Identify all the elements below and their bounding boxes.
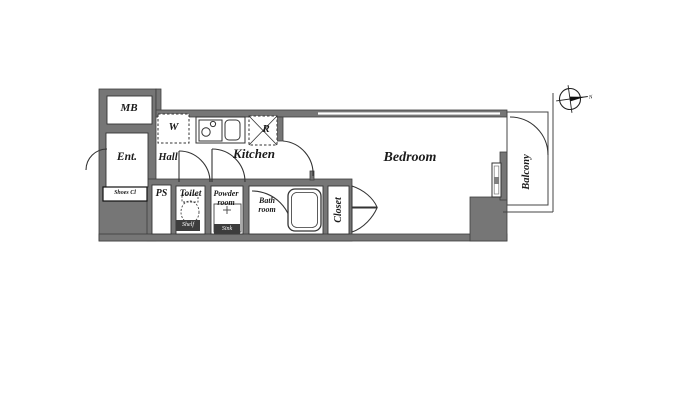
room-label-kitchen: Kitchen bbox=[218, 147, 290, 162]
room-label-bedroom: Bedroom bbox=[368, 150, 452, 166]
room-label-refrigerator: R bbox=[255, 123, 277, 136]
wall-kitchen-stub bbox=[277, 117, 283, 141]
fixture-tag-powder-sink: Sink bbox=[214, 224, 240, 234]
stove-burner-large-icon bbox=[202, 128, 210, 136]
shutter-box-mark bbox=[494, 177, 499, 184]
fixture-tag-toilet-shelf: Shelf bbox=[176, 220, 200, 231]
room-label-entrance: Ent. bbox=[106, 151, 148, 164]
room-label-washer: W bbox=[158, 121, 189, 134]
compass-north-label: N bbox=[588, 94, 594, 101]
room-label-bath-room: Bath room bbox=[252, 196, 282, 214]
wall-bottom-right-block bbox=[470, 197, 507, 241]
bath-fixture bbox=[288, 189, 321, 231]
room-label-shoes-closet: Shoes Cl bbox=[104, 190, 146, 197]
room-label-toilet: Toilet bbox=[174, 189, 207, 200]
bedroom-wall-fixture bbox=[492, 163, 501, 197]
room-label-powder-room: Powder room bbox=[209, 189, 243, 207]
bathtub-icon bbox=[288, 189, 321, 231]
floor-plan-canvas: N MB Ent. Shoes Cl Hall W Kitchen R PS T… bbox=[0, 0, 676, 416]
room-label-pipe-space: PS bbox=[150, 188, 173, 200]
room-label-closet: Closet bbox=[318, 188, 360, 232]
wall-bottom bbox=[99, 234, 507, 241]
compass-icon: N bbox=[554, 82, 595, 115]
sink-icon bbox=[225, 120, 240, 140]
bedroom-window bbox=[318, 112, 500, 114]
room-label-meter-box: MB bbox=[109, 102, 149, 115]
stove-burner-small-icon bbox=[210, 121, 215, 126]
room-label-balcony: Balcony bbox=[505, 150, 549, 194]
room-label-hall: Hall bbox=[150, 152, 186, 164]
compass-needle bbox=[570, 95, 586, 102]
